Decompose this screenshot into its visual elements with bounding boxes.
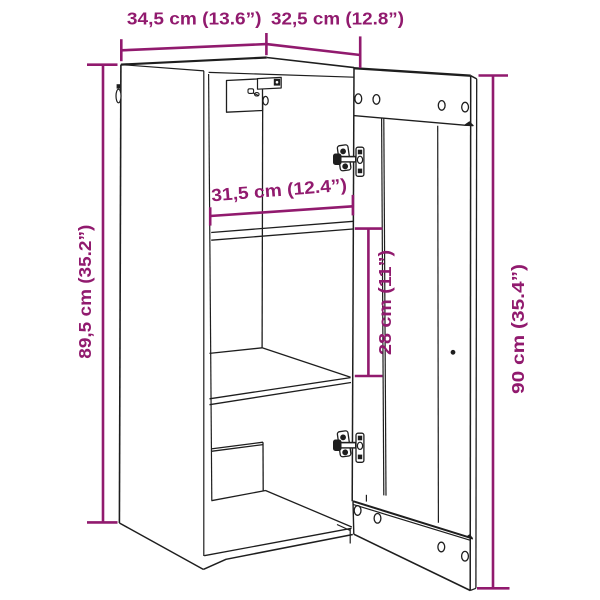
svg-text:28 cm (11”): 28 cm (11”)	[375, 250, 395, 355]
svg-text:32,5 cm (12.8”): 32,5 cm (12.8”)	[271, 8, 404, 28]
svg-text:90 cm (35.4”): 90 cm (35.4”)	[508, 264, 528, 394]
svg-text:34,5 cm (13.6”): 34,5 cm (13.6”)	[127, 9, 262, 29]
svg-text:89,5 cm (35.2”): 89,5 cm (35.2”)	[75, 225, 95, 359]
